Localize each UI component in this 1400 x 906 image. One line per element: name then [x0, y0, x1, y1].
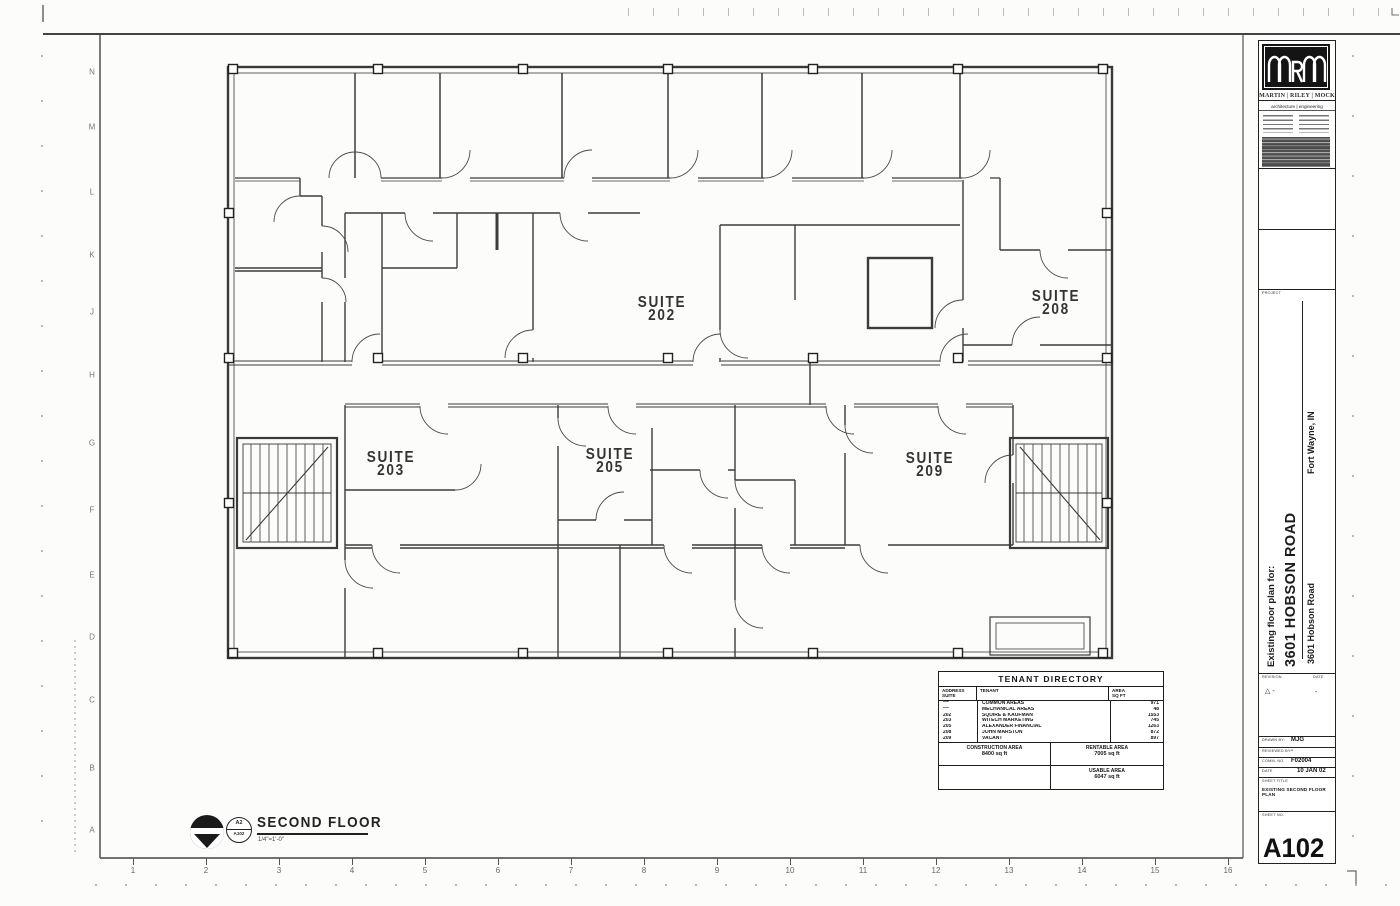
column-marker — [225, 209, 234, 218]
divider — [1259, 811, 1335, 812]
project-name: 3601 HOBSON ROAD — [1283, 479, 1302, 667]
grid-letter: M — [86, 123, 98, 132]
column-marker — [1103, 354, 1112, 363]
grid-number: 3 — [277, 866, 281, 875]
reference-divider — [227, 829, 251, 830]
column-marker — [1099, 649, 1108, 658]
tenant-directory-title: TENANT DIRECTORY — [939, 672, 1163, 687]
grid-number-tick — [498, 858, 499, 865]
sheet-title-value: EXISTING SECOND FLOOR PLAN — [1262, 787, 1335, 797]
grid-number-tick — [863, 858, 864, 865]
divider — [1259, 168, 1335, 169]
drawing-sheet: NMLKJHGFEDCBA 12345678910111213141516 SU… — [0, 0, 1400, 906]
grid-number: 7 — [569, 866, 573, 875]
grid-number: 2 — [204, 866, 208, 875]
reviewed-by-label: REVIEWED BY: — [1262, 749, 1292, 753]
usable-area-cell: USABLE AREA 6047 sq ft — [1050, 766, 1163, 790]
column-marker — [519, 649, 528, 658]
column-marker — [809, 65, 818, 74]
grid-number: 6 — [496, 866, 500, 875]
revision-date-value: - — [1315, 689, 1317, 696]
tenant-row-area: 897 — [1110, 736, 1163, 742]
construction-area-cell: CONSTRUCTION AREA 8400 sq ft — [939, 743, 1050, 765]
tenant-row-name: VACANT — [977, 736, 1110, 742]
project-city: Fort Wayne, IN — [1306, 359, 1319, 474]
rentable-area-value: 7005 sq ft — [1051, 751, 1163, 758]
tenant-directory-totals: CONSTRUCTION AREA 8400 sq ft RENTABLE AR… — [939, 743, 1163, 790]
grid-number: 9 — [715, 866, 719, 875]
col-header-address: ADDRESS SUITE — [939, 687, 976, 700]
firm-address-col1 — [1263, 115, 1293, 133]
tenant-row: 209VACANT897 — [939, 736, 1163, 742]
grid-number-tick — [279, 858, 280, 865]
project-address: 3601 Hobson Road — [1306, 526, 1319, 664]
drawing-scale: 1/4"=1'-0" — [258, 837, 284, 843]
drawing-title: SECOND FLOOR — [257, 814, 382, 831]
interior-walls — [228, 73, 1112, 658]
suite-label-number: 202 — [638, 309, 687, 322]
grid-letter: L — [86, 188, 98, 197]
grid-number-tick — [1228, 858, 1229, 865]
suite-label: SUITE209 — [901, 453, 958, 478]
firm-tagline: architecture | engineering — [1259, 104, 1335, 111]
door-arcs — [274, 150, 1068, 628]
grid-letter: J — [86, 308, 98, 317]
column-marker — [374, 354, 383, 363]
tenant-directory-header: ADDRESS SUITE TENANT AREA SQ FT — [939, 687, 1163, 701]
grid-number: 1 — [131, 866, 135, 875]
revision-mark: △ - — [1265, 687, 1275, 695]
column-marker — [374, 65, 383, 74]
certification-text-block — [1262, 137, 1330, 167]
drawing-reference-bubble: A2 A102 — [226, 817, 252, 843]
project-prefix: Existing floor plan for: — [1266, 499, 1279, 667]
sheet-no-label: SHEET NO. — [1262, 813, 1284, 817]
column-marker — [229, 649, 238, 658]
drawn-by-label: DRAWN BY: — [1262, 738, 1285, 742]
drawing-key-symbol — [190, 815, 224, 849]
firm-name: MARTIN | RILEY | MOCK — [1259, 93, 1335, 101]
grid-letter: A — [86, 826, 98, 835]
totals-empty-cell — [939, 766, 1050, 790]
column-marker — [664, 65, 673, 74]
comm-no-label: COMM. NO. — [1262, 759, 1285, 763]
grid-number: 8 — [642, 866, 646, 875]
grid-number-tick — [717, 858, 718, 865]
grid-number-tick — [1082, 858, 1083, 865]
drawing-title-underline — [257, 833, 368, 835]
grid-letter: G — [86, 439, 98, 448]
revision-label: REVISION — [1262, 675, 1282, 679]
grid-number-tick — [352, 858, 353, 865]
grid-letter: C — [86, 696, 98, 705]
divider — [1259, 747, 1335, 748]
grid-letter: E — [86, 571, 98, 580]
wall-notch — [990, 617, 1090, 655]
suite-label: SUITE203 — [362, 452, 419, 477]
tenant-rows: ***COMMON AREAS971***MECHANICAL AREAS482… — [939, 701, 1163, 743]
grid-number-tick — [571, 858, 572, 865]
suite-label: SUITE208 — [1027, 291, 1084, 316]
grid-number: 11 — [859, 866, 867, 875]
comm-no-value: F02004 — [1291, 758, 1311, 764]
suite-label: SUITE205 — [581, 449, 638, 474]
column-marker — [954, 649, 963, 658]
divider — [1259, 229, 1335, 230]
suite-label-number: 208 — [1032, 303, 1081, 316]
sheet-number: A102 — [1263, 833, 1324, 864]
grid-number-tick — [425, 858, 426, 865]
column-marker — [1103, 209, 1112, 218]
tenant-row-suite: 209 — [939, 736, 977, 742]
column-marker — [374, 649, 383, 658]
col-header-address-line2: SUITE — [942, 693, 976, 698]
stairwell-left — [237, 438, 337, 548]
sheet-title-label: SHEET TITLE — [1262, 779, 1288, 783]
column-marker — [225, 354, 234, 363]
grid-letter: D — [86, 633, 98, 642]
column-marker — [519, 354, 528, 363]
column-marker — [954, 65, 963, 74]
reviewed-by-value: - — [1291, 748, 1293, 754]
floor-plan-canvas — [0, 0, 1400, 906]
column-marker — [1103, 499, 1112, 508]
project-label: PROJECT — [1262, 291, 1281, 295]
grid-number-tick — [644, 858, 645, 865]
column-marker — [1099, 65, 1108, 74]
grid-letter: H — [86, 371, 98, 380]
column-marker — [809, 354, 818, 363]
firm-logo — [1262, 44, 1330, 90]
date-value: 10 JAN 02 — [1297, 768, 1326, 774]
title-block: MARTIN | RILEY | MOCK architecture | eng… — [1258, 40, 1336, 864]
suite-label: SUITE202 — [633, 297, 690, 322]
column-marker — [519, 65, 528, 74]
revision-date-label: DATE — [1313, 675, 1324, 679]
rentable-area-cell: RENTABLE AREA 7005 sq ft — [1050, 743, 1163, 765]
grid-number-tick — [206, 858, 207, 865]
column-marker — [225, 499, 234, 508]
suite-label-number: 205 — [586, 461, 635, 474]
grid-letter: B — [86, 764, 98, 773]
grid-number-tick — [936, 858, 937, 865]
col-header-area-line2: SQ FT — [1112, 693, 1163, 698]
suite-label-number: 209 — [906, 465, 955, 478]
firm-address-block — [1263, 115, 1329, 133]
reference-sheet: A102 — [227, 831, 251, 836]
sheet-border — [43, 5, 1400, 884]
grid-number-tick — [1155, 858, 1156, 865]
grid-number: 4 — [350, 866, 354, 875]
column-marker — [809, 649, 818, 658]
col-header-tenant: TENANT — [976, 687, 1108, 700]
firm-address-col2 — [1299, 115, 1329, 133]
grid-number: 5 — [423, 866, 427, 875]
key-symbol-band — [190, 828, 224, 834]
grid-number: 15 — [1151, 866, 1160, 875]
grid-number: 10 — [786, 866, 795, 875]
grid-letter: N — [86, 68, 98, 77]
column-marker — [954, 354, 963, 363]
grid-number: 13 — [1005, 866, 1014, 875]
usable-area-value: 6047 sq ft — [1051, 774, 1163, 781]
stairwell-right — [1010, 438, 1108, 548]
grid-number-tick — [790, 858, 791, 865]
col-header-area: AREA SQ FT — [1108, 687, 1163, 700]
key-symbol-triangle — [194, 834, 220, 848]
divider — [1259, 777, 1335, 778]
column-marker — [229, 65, 238, 74]
suite-label-number: 203 — [367, 464, 416, 477]
date-label: DATE — [1262, 769, 1273, 773]
grid-number: 16 — [1224, 866, 1233, 875]
divider — [1259, 289, 1335, 290]
grid-number: 12 — [932, 866, 941, 875]
drawn-by-value: MJG — [1291, 737, 1304, 743]
reference-number: A2 — [227, 820, 251, 826]
column-marker — [664, 649, 673, 658]
column-marker — [664, 354, 673, 363]
divider — [1259, 673, 1335, 674]
grid-number: 14 — [1078, 866, 1087, 875]
construction-area-value: 8400 sq ft — [939, 751, 1050, 758]
grid-letter: F — [86, 506, 98, 515]
grid-number-tick — [1009, 858, 1010, 865]
project-name-rule — [1302, 301, 1303, 659]
tenant-directory-table: TENANT DIRECTORY ADDRESS SUITE TENANT AR… — [938, 671, 1164, 790]
grid-letter: K — [86, 251, 98, 260]
grid-number-tick — [133, 858, 134, 865]
